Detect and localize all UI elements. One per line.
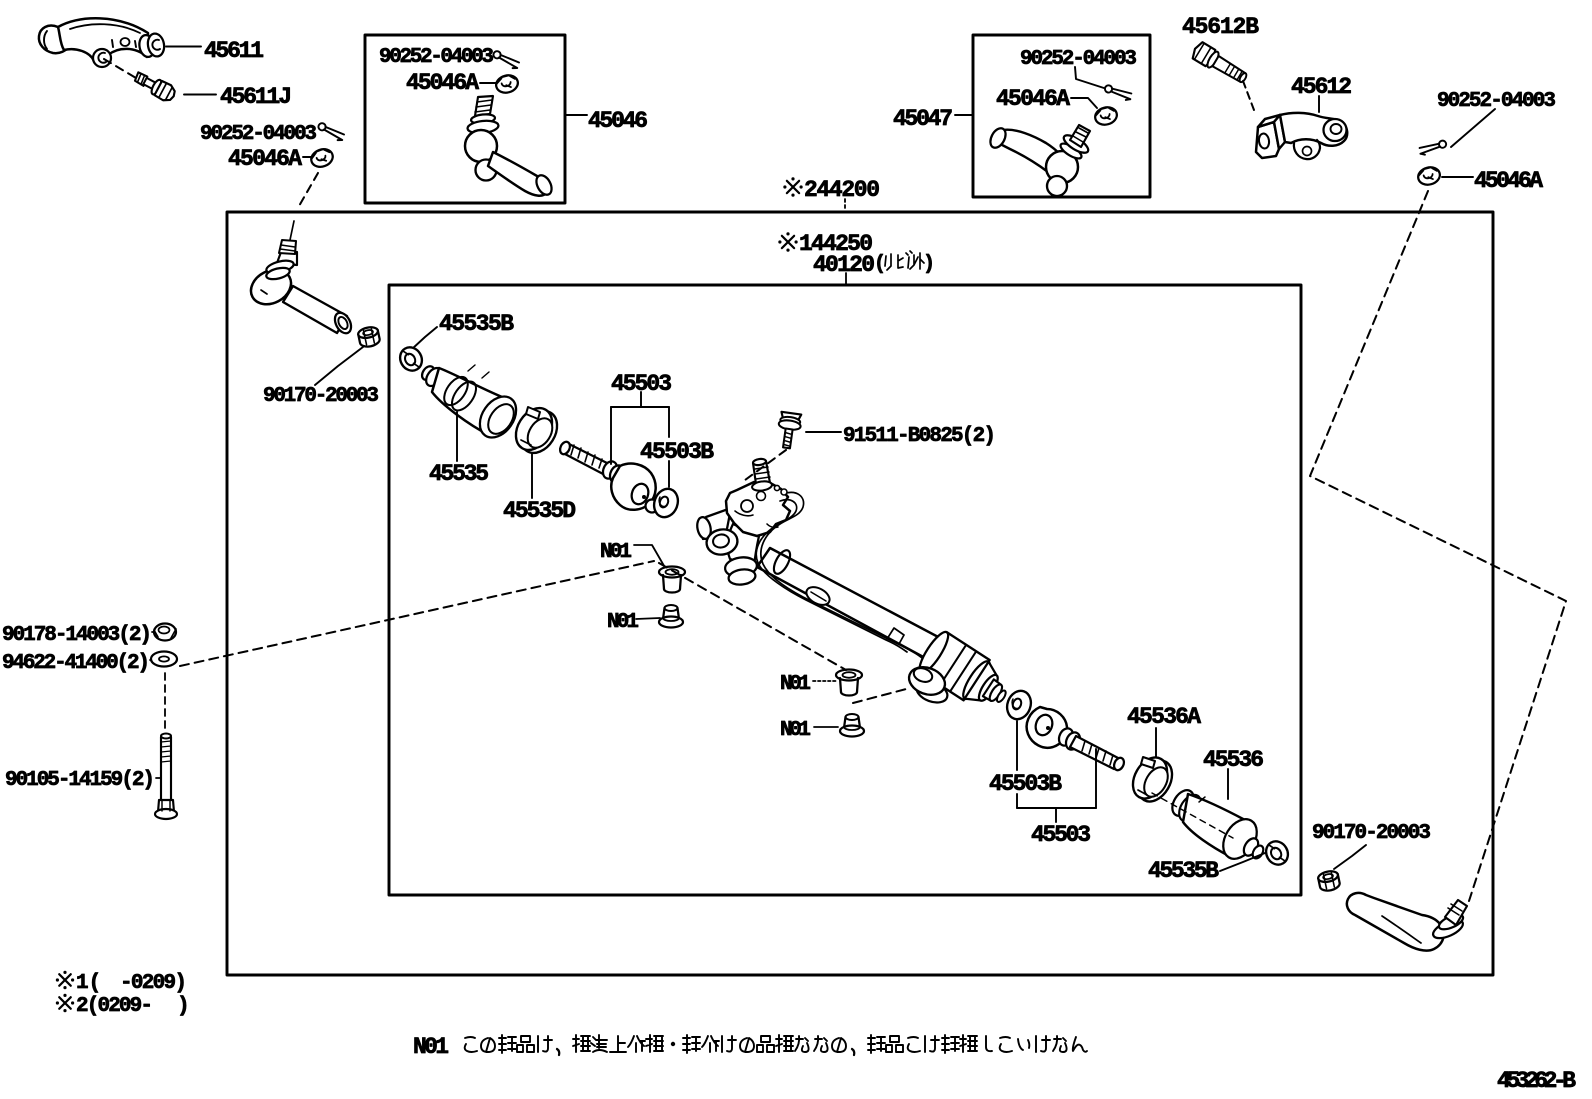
svg-text:45046: 45046 (588, 108, 648, 134)
svg-text:45536: 45536 (1203, 747, 1264, 773)
svg-text:45046A: 45046A (228, 146, 302, 172)
svg-text:90105-14159(2): 90105-14159(2) (5, 769, 155, 792)
svg-text:45046A: 45046A (406, 70, 479, 96)
svg-text:45535: 45535 (429, 461, 489, 487)
svg-text:90252-04003: 90252-04003 (379, 46, 494, 69)
svg-text:94622-41400(2): 94622-41400(2) (2, 652, 150, 675)
svg-text:45536A: 45536A (1127, 704, 1201, 730)
svg-text:1(: 1( (76, 972, 101, 995)
svg-text:-0209): -0209) (120, 972, 187, 995)
svg-text:45611J: 45611J (220, 84, 292, 110)
svg-text:90252-04003: 90252-04003 (1437, 90, 1556, 113)
svg-text:90170-20003: 90170-20003 (263, 385, 379, 408)
svg-text:): ) (923, 253, 935, 276)
svg-text:45503: 45503 (1031, 822, 1091, 848)
svg-text:N01: N01 (607, 611, 639, 634)
svg-text:45612B: 45612B (1182, 14, 1259, 40)
svg-text:90252-04003: 90252-04003 (1020, 48, 1137, 71)
svg-text:45046A: 45046A (996, 86, 1070, 112)
svg-text:91511-B0825(2): 91511-B0825(2) (843, 425, 996, 448)
svg-text:N01: N01 (780, 719, 811, 742)
svg-text:(: ( (874, 253, 886, 276)
svg-text:453262-B: 453262-B (1497, 1068, 1576, 1094)
svg-text:90170-20003: 90170-20003 (1312, 822, 1431, 845)
svg-text:45503B: 45503B (640, 439, 714, 465)
svg-text:45611: 45611 (204, 38, 264, 64)
svg-text:N01: N01 (413, 1034, 449, 1060)
svg-text:2(0209-: 2(0209- (76, 995, 153, 1018)
svg-text:90252-04003: 90252-04003 (200, 123, 317, 146)
svg-text:45535B: 45535B (439, 311, 514, 337)
svg-text:): ) (177, 995, 190, 1018)
svg-text:244200: 244200 (804, 177, 880, 203)
svg-text:45535D: 45535D (503, 498, 576, 524)
svg-text:45612: 45612 (1291, 74, 1352, 100)
svg-text:45046A: 45046A (1474, 168, 1543, 194)
svg-text:N01: N01 (780, 673, 811, 696)
svg-text:45503: 45503 (611, 371, 672, 397)
svg-text:45503B: 45503B (989, 771, 1062, 797)
svg-text:N01: N01 (600, 541, 632, 564)
svg-text:45047: 45047 (893, 106, 953, 132)
svg-text:40120: 40120 (813, 252, 875, 278)
svg-text:45535B: 45535B (1148, 858, 1219, 884)
svg-text:90178-14003(2): 90178-14003(2) (2, 624, 152, 647)
